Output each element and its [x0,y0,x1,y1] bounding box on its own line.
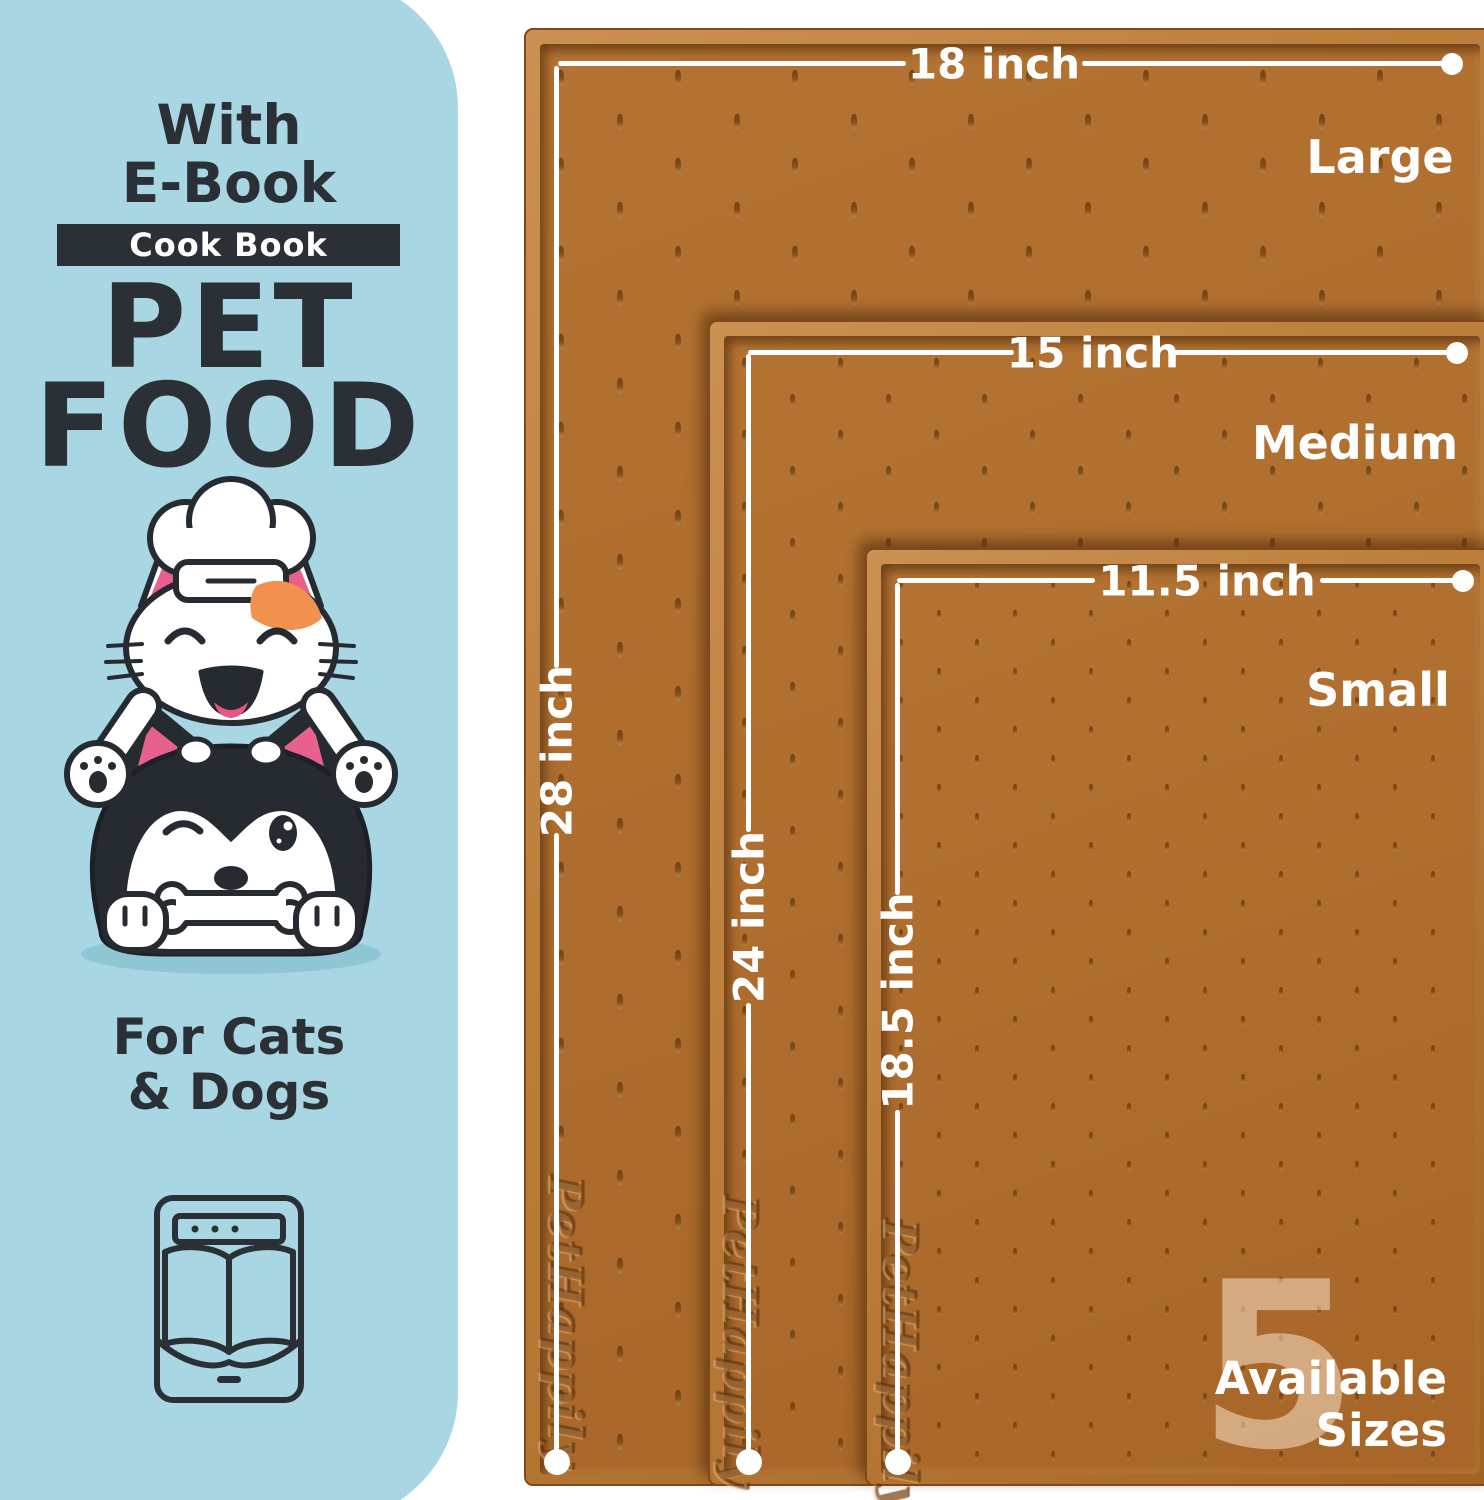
width-line-large-left [558,61,906,66]
length-line-small-top [895,583,900,895]
width-label-medium: 15 inch [1007,329,1179,378]
with-ebook-line1: With [0,96,458,154]
audience-line1: For Cats [0,1010,458,1065]
cat-dog-chef-illustration [46,476,416,981]
ebook-icon [143,1194,315,1406]
size-label-small: Small [1306,663,1450,717]
length-label-medium: 24 inch [725,831,774,1003]
sizes-label-line1: Available [1215,1356,1447,1401]
width-line-small-right [1320,578,1464,583]
length-line-medium-bottom [746,1003,751,1463]
size-label-large: Large [1306,130,1453,184]
width-label-large: 18 inch [908,40,1080,89]
with-ebook-text: With E-Book [0,96,458,212]
line-endpoint-dot [544,1449,570,1475]
line-endpoint-dot [1441,53,1463,75]
audience-line2: & Dogs [0,1065,458,1120]
line-endpoint-dot [1452,570,1474,592]
length-line-medium-top [746,354,751,832]
line-endpoint-dot [736,1449,762,1475]
product-title-line2: FOOD [0,377,458,476]
width-line-medium-right [1172,350,1458,355]
length-line-large-top [554,66,559,668]
width-line-large-right [1082,61,1454,66]
brand-emboss-medium: PetHappily [714,1195,768,1488]
product-image: With E-Book Cook Book PET FOOD [0,0,1484,1500]
length-line-large-bottom [554,833,559,1463]
sizes-label-line2: Sizes [1316,1408,1447,1453]
line-endpoint-dot [885,1449,911,1475]
audience-text: For Cats & Dogs [0,1010,458,1120]
width-line-medium-left [748,350,1014,355]
cat-chef-icon [102,479,360,766]
length-label-large: 28 inch [533,665,582,837]
width-line-small-left [897,578,1095,583]
length-line-small-bottom [895,1110,900,1463]
brand-emboss-large: PetHappily [539,1175,593,1468]
with-ebook-line2: E-Book [0,154,458,212]
bone-icon [157,884,305,932]
line-endpoint-dot [1446,342,1468,364]
info-panel: With E-Book Cook Book PET FOOD [0,0,458,1500]
product-title: PET FOOD [0,278,458,476]
length-label-small: 18.5 inch [874,892,923,1109]
size-label-medium: Medium [1252,416,1458,470]
chef-hat-icon [150,479,313,600]
width-label-small: 11.5 inch [1098,557,1315,606]
